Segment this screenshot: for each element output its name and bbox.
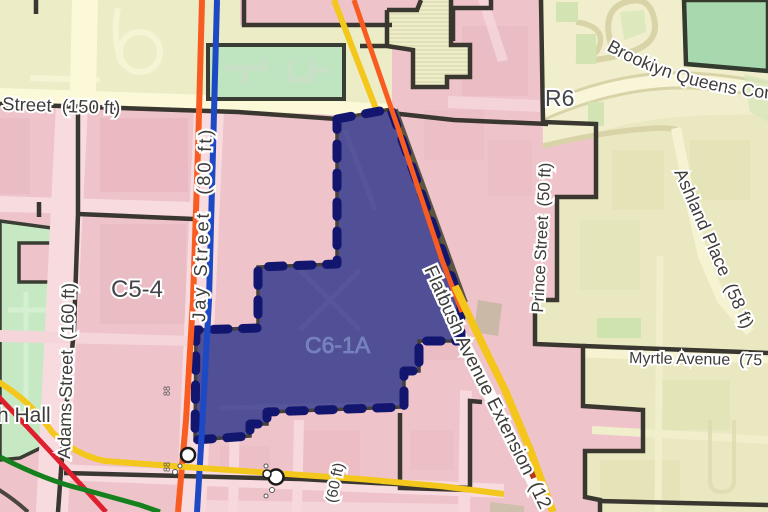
svg-text:R6: R6: [545, 85, 574, 111]
svg-text:Myrtle Avenue (75: Myrtle Avenue (75: [629, 350, 762, 369]
svg-text:h Hall: h Hall: [0, 404, 51, 427]
svg-text:C6-1A: C6-1A: [305, 332, 371, 358]
svg-text:88: 88: [162, 462, 172, 472]
svg-text:Street (150 ft): Street (150 ft): [2, 93, 121, 118]
svg-text:C5-4: C5-4: [111, 276, 163, 303]
svg-text:88: 88: [162, 386, 172, 396]
